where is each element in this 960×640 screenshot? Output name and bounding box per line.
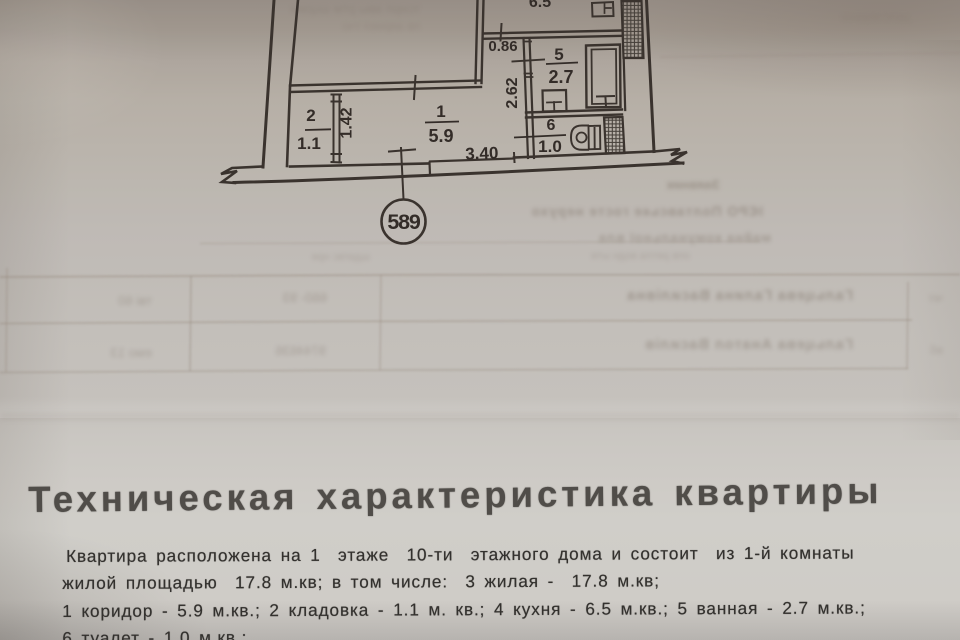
- svg-text:6.5: 6.5: [529, 0, 551, 11]
- svg-text:1: 1: [436, 102, 445, 121]
- svg-text:1.0: 1.0: [538, 137, 562, 156]
- svg-text:5: 5: [554, 45, 563, 64]
- svg-text:1.42: 1.42: [339, 107, 356, 138]
- svg-text:6: 6: [547, 117, 556, 134]
- svg-text:3.40: 3.40: [465, 143, 499, 163]
- svg-text:2: 2: [306, 106, 315, 125]
- svg-text:5.9: 5.9: [428, 126, 453, 146]
- svg-text:2.7: 2.7: [548, 67, 573, 87]
- svg-text:2.62: 2.62: [504, 77, 521, 108]
- svg-text:1.1: 1.1: [297, 134, 321, 153]
- svg-text:0.86: 0.86: [488, 38, 517, 55]
- svg-text:589: 589: [387, 210, 421, 234]
